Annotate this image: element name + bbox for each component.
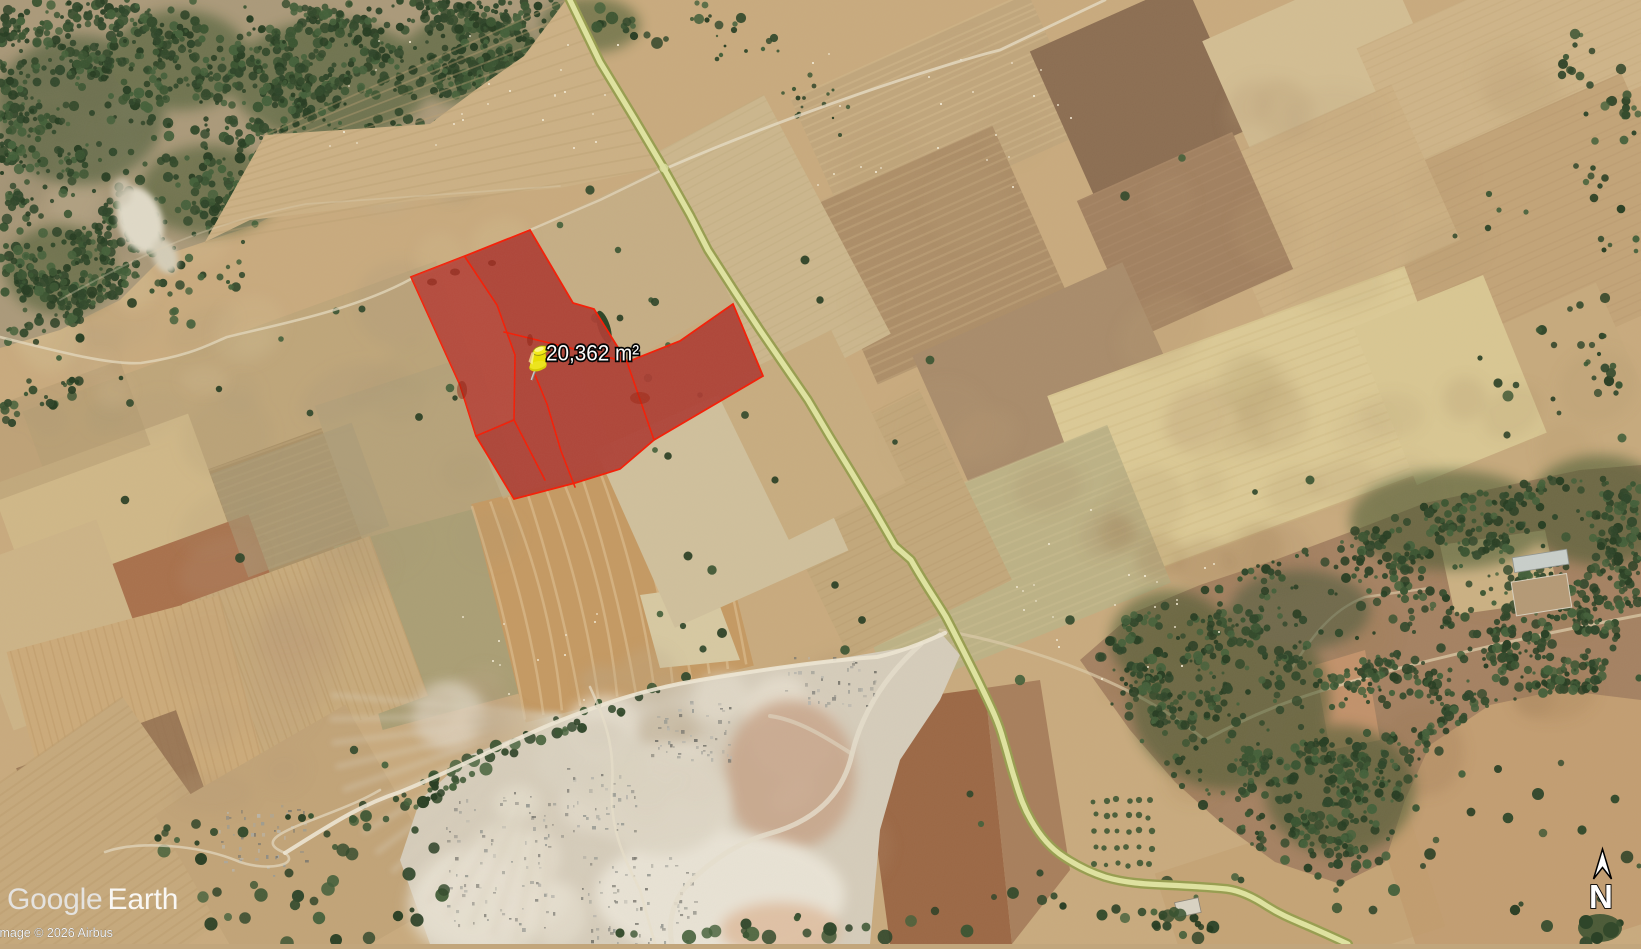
svg-text:GoogleEarth: GoogleEarth [7,883,178,916]
svg-text:Image © 2026 Airbus: Image © 2026 Airbus [0,926,113,940]
svg-text:N: N [1589,878,1613,915]
